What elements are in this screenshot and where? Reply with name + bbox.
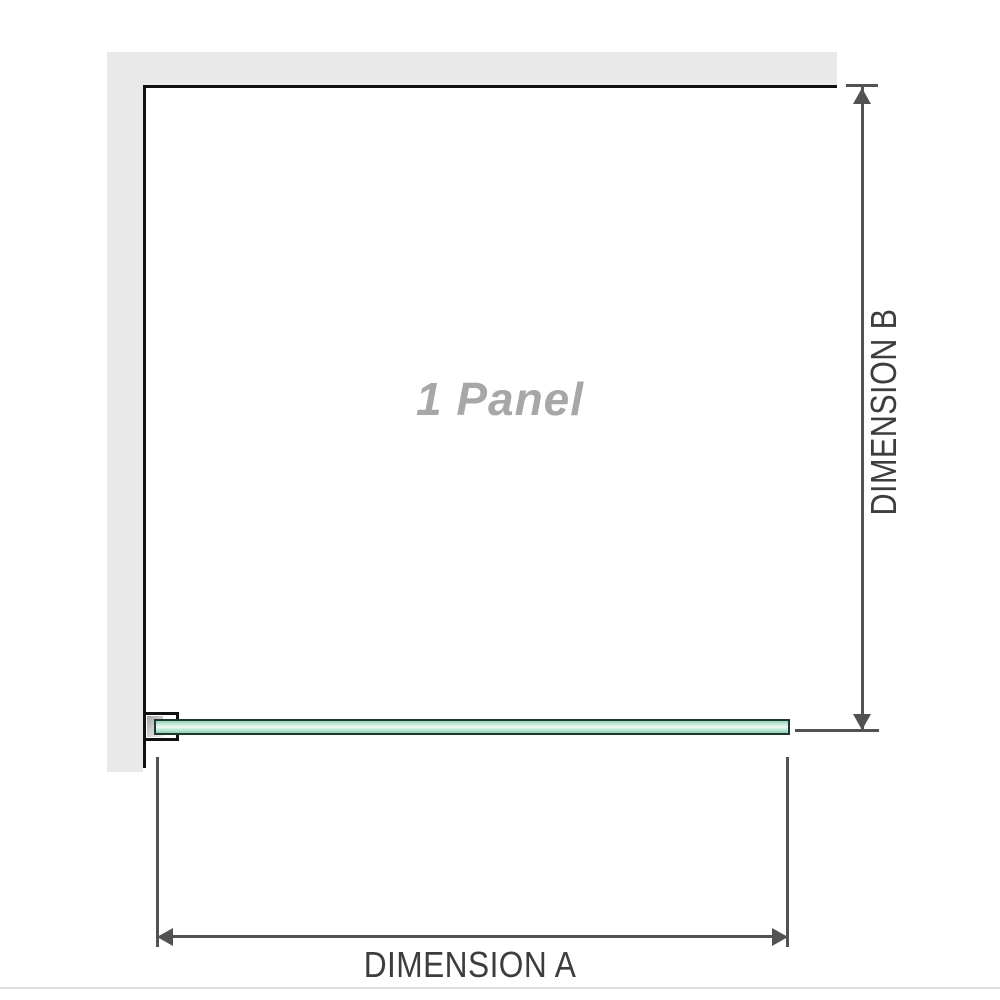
panel-count-label: 1 Panel xyxy=(416,372,584,426)
wall-top xyxy=(107,52,837,85)
dimension-a-extension-right xyxy=(786,757,789,947)
dimension-a-extension-left xyxy=(156,757,159,947)
dimension-b-cap-top xyxy=(846,84,878,87)
wall-left xyxy=(107,52,143,772)
panel-outline-left xyxy=(143,85,146,768)
panel-outline-top xyxy=(143,85,837,88)
dimension-a-label: DIMENSION A xyxy=(364,944,577,986)
dimension-b-label: DIMENSION B xyxy=(863,308,905,515)
shower-panel-dimension-diagram: 1 Panel DIMENSION B DIMENSION A xyxy=(0,0,1000,1000)
glass-panel xyxy=(154,719,790,735)
dimension-b-arrow-up-icon xyxy=(853,88,871,104)
dimension-a-arrow-left-icon xyxy=(157,928,173,946)
dimension-b-arrow-down-icon xyxy=(853,714,871,730)
bottom-separator-line xyxy=(0,987,1000,989)
dimension-a-line xyxy=(160,935,785,938)
dimension-a-arrow-right-icon xyxy=(772,928,788,946)
